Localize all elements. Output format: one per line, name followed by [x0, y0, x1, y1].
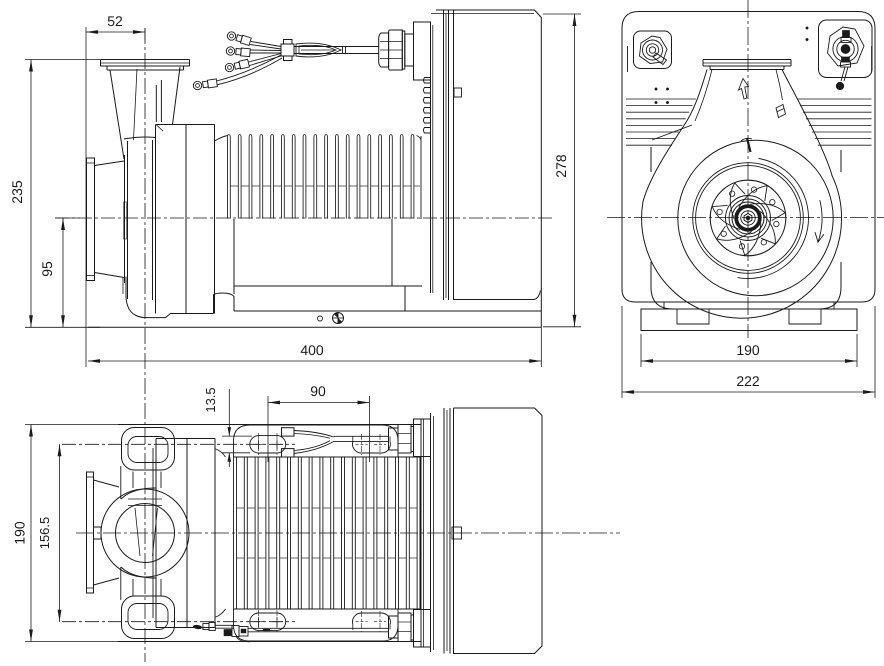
svg-text:90: 90	[310, 383, 326, 399]
svg-text:156.5: 156.5	[37, 517, 52, 550]
svg-text:190: 190	[736, 342, 760, 358]
svg-text:222: 222	[736, 373, 760, 389]
svg-text:278: 278	[553, 154, 569, 178]
svg-text:235: 235	[9, 180, 25, 204]
svg-text:52: 52	[107, 13, 123, 29]
svg-text:13.5: 13.5	[203, 387, 218, 412]
svg-text:190: 190	[12, 521, 28, 545]
svg-text:400: 400	[300, 342, 324, 358]
svg-text:95: 95	[39, 261, 55, 277]
